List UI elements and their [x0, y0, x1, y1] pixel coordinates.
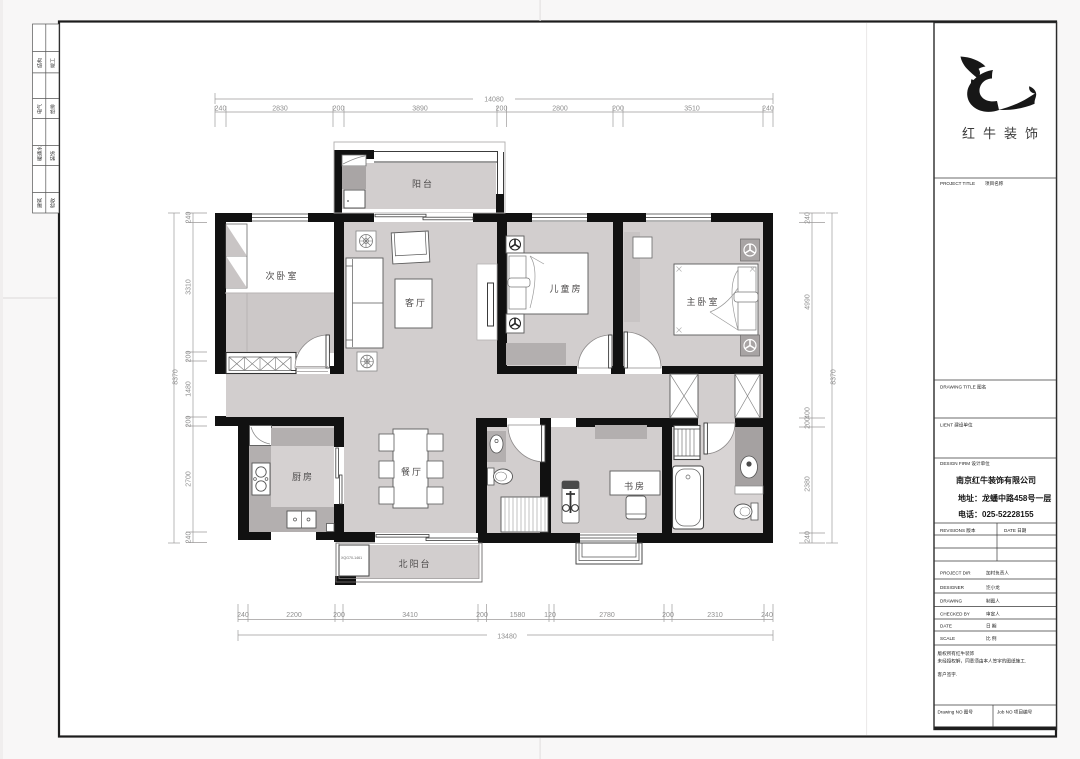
svg-text:2310: 2310	[707, 612, 723, 619]
svg-text:书房: 书房	[624, 481, 646, 492]
svg-text:版权所有红牛装饰: 版权所有红牛装饰	[938, 650, 975, 657]
svg-text:200: 200	[662, 612, 674, 619]
svg-text:比 例: 比 例	[986, 635, 997, 642]
svg-text:200: 200	[333, 612, 345, 619]
svg-text:CHECKED BY: CHECKED BY	[940, 612, 970, 617]
svg-text:PROJECT TITLE: PROJECT TITLE	[940, 181, 975, 186]
svg-text:2380: 2380	[805, 476, 812, 492]
svg-text:DRAWING TITLE 图名: DRAWING TITLE 图名	[940, 384, 986, 391]
svg-text:3510: 3510	[684, 106, 700, 113]
svg-text:制图人: 制图人	[986, 598, 1000, 605]
svg-text:200: 200	[805, 417, 812, 429]
svg-text:未经授权解，同意须由本人签字的图纸施工.: 未经授权解，同意须由本人签字的图纸施工.	[938, 658, 1027, 665]
svg-text:审定人: 审定人	[986, 611, 1000, 618]
svg-text:SCALE: SCALE	[940, 636, 955, 641]
svg-text:14080: 14080	[484, 97, 504, 104]
svg-text:2200: 2200	[286, 612, 302, 619]
svg-text:240: 240	[186, 532, 193, 544]
svg-text:240: 240	[762, 106, 774, 113]
svg-text:南京红牛装饰有限公司: 南京红牛装饰有限公司	[956, 475, 1036, 485]
svg-text:建筑: 建筑	[37, 198, 44, 208]
svg-text:加村负责人: 加村负责人	[986, 570, 1009, 577]
svg-text:400: 400	[805, 407, 812, 419]
svg-text:暖通水: 暖通水	[37, 146, 44, 161]
svg-text:装饰: 装饰	[50, 151, 57, 161]
svg-text:2830: 2830	[272, 106, 288, 113]
svg-text:200: 200	[186, 351, 193, 363]
svg-text:2700: 2700	[186, 471, 193, 487]
svg-text:DESIGN FIRM 设计单位: DESIGN FIRM 设计单位	[940, 460, 990, 467]
svg-text:客户签字.: 客户签字.	[938, 671, 958, 678]
svg-text:DATE: DATE	[940, 624, 952, 629]
svg-text:客厅: 客厅	[405, 297, 427, 308]
svg-text:地址：龙蟠中路458号一层: 地址：龙蟠中路458号一层	[958, 493, 1051, 503]
svg-text:验收: 验收	[50, 198, 57, 208]
svg-text:240: 240	[186, 212, 193, 224]
svg-text:次卧室: 次卧室	[265, 270, 298, 281]
svg-text:LIENT 建设单位: LIENT 建设单位	[940, 422, 973, 429]
svg-text:2800: 2800	[552, 106, 568, 113]
svg-text:240: 240	[761, 612, 773, 619]
svg-text:迮小龙: 迮小龙	[986, 584, 1000, 591]
svg-text:3410: 3410	[402, 612, 418, 619]
svg-text:3890: 3890	[412, 106, 428, 113]
svg-text:给排: 给排	[50, 104, 57, 114]
svg-text:1480: 1480	[186, 381, 193, 397]
svg-text:竣工: 竣工	[50, 58, 57, 68]
svg-text:北阳台: 北阳台	[398, 558, 431, 569]
svg-text:3310: 3310	[186, 279, 193, 295]
svg-text:电气: 电气	[37, 104, 44, 114]
svg-text:餐厅: 餐厅	[401, 466, 423, 477]
svg-text:4990: 4990	[805, 294, 812, 310]
svg-text:厨房: 厨房	[292, 471, 314, 482]
svg-text:200: 200	[333, 106, 345, 113]
svg-text:电话：025-52228155: 电话：025-52228155	[958, 509, 1034, 519]
svg-text:240: 240	[237, 612, 249, 619]
svg-text:240: 240	[215, 106, 227, 113]
svg-text:2780: 2780	[599, 612, 615, 619]
svg-text:儿童房: 儿童房	[549, 283, 582, 294]
svg-text:200: 200	[476, 612, 488, 619]
svg-text:DESIGNER: DESIGNER	[940, 585, 965, 590]
svg-text:XQG70-1461: XQG70-1461	[341, 556, 362, 560]
svg-text:PROJECT DIR: PROJECT DIR	[940, 571, 971, 576]
svg-text:红牛装饰: 红牛装饰	[962, 126, 1046, 141]
svg-text:1580: 1580	[510, 612, 526, 619]
svg-text:阳台: 阳台	[412, 178, 434, 189]
svg-text:200: 200	[612, 106, 624, 113]
svg-text:200: 200	[186, 416, 193, 428]
svg-text:13480: 13480	[497, 634, 517, 641]
svg-text:项目名称: 项目名称	[985, 180, 1004, 187]
svg-text:200: 200	[496, 106, 508, 113]
svg-text:Job NO 项目编号: Job NO 项目编号	[997, 709, 1033, 716]
svg-text:240: 240	[805, 212, 812, 224]
svg-text:结构: 结构	[37, 58, 44, 68]
svg-text:8370: 8370	[831, 369, 838, 385]
svg-text:8370: 8370	[173, 369, 180, 385]
svg-text:主卧室: 主卧室	[686, 296, 719, 307]
svg-text:DRAWING: DRAWING	[940, 599, 962, 604]
svg-text:240: 240	[805, 531, 812, 543]
svg-text:REVISIONS 版本: REVISIONS 版本	[940, 527, 976, 534]
svg-text:120: 120	[544, 612, 556, 619]
